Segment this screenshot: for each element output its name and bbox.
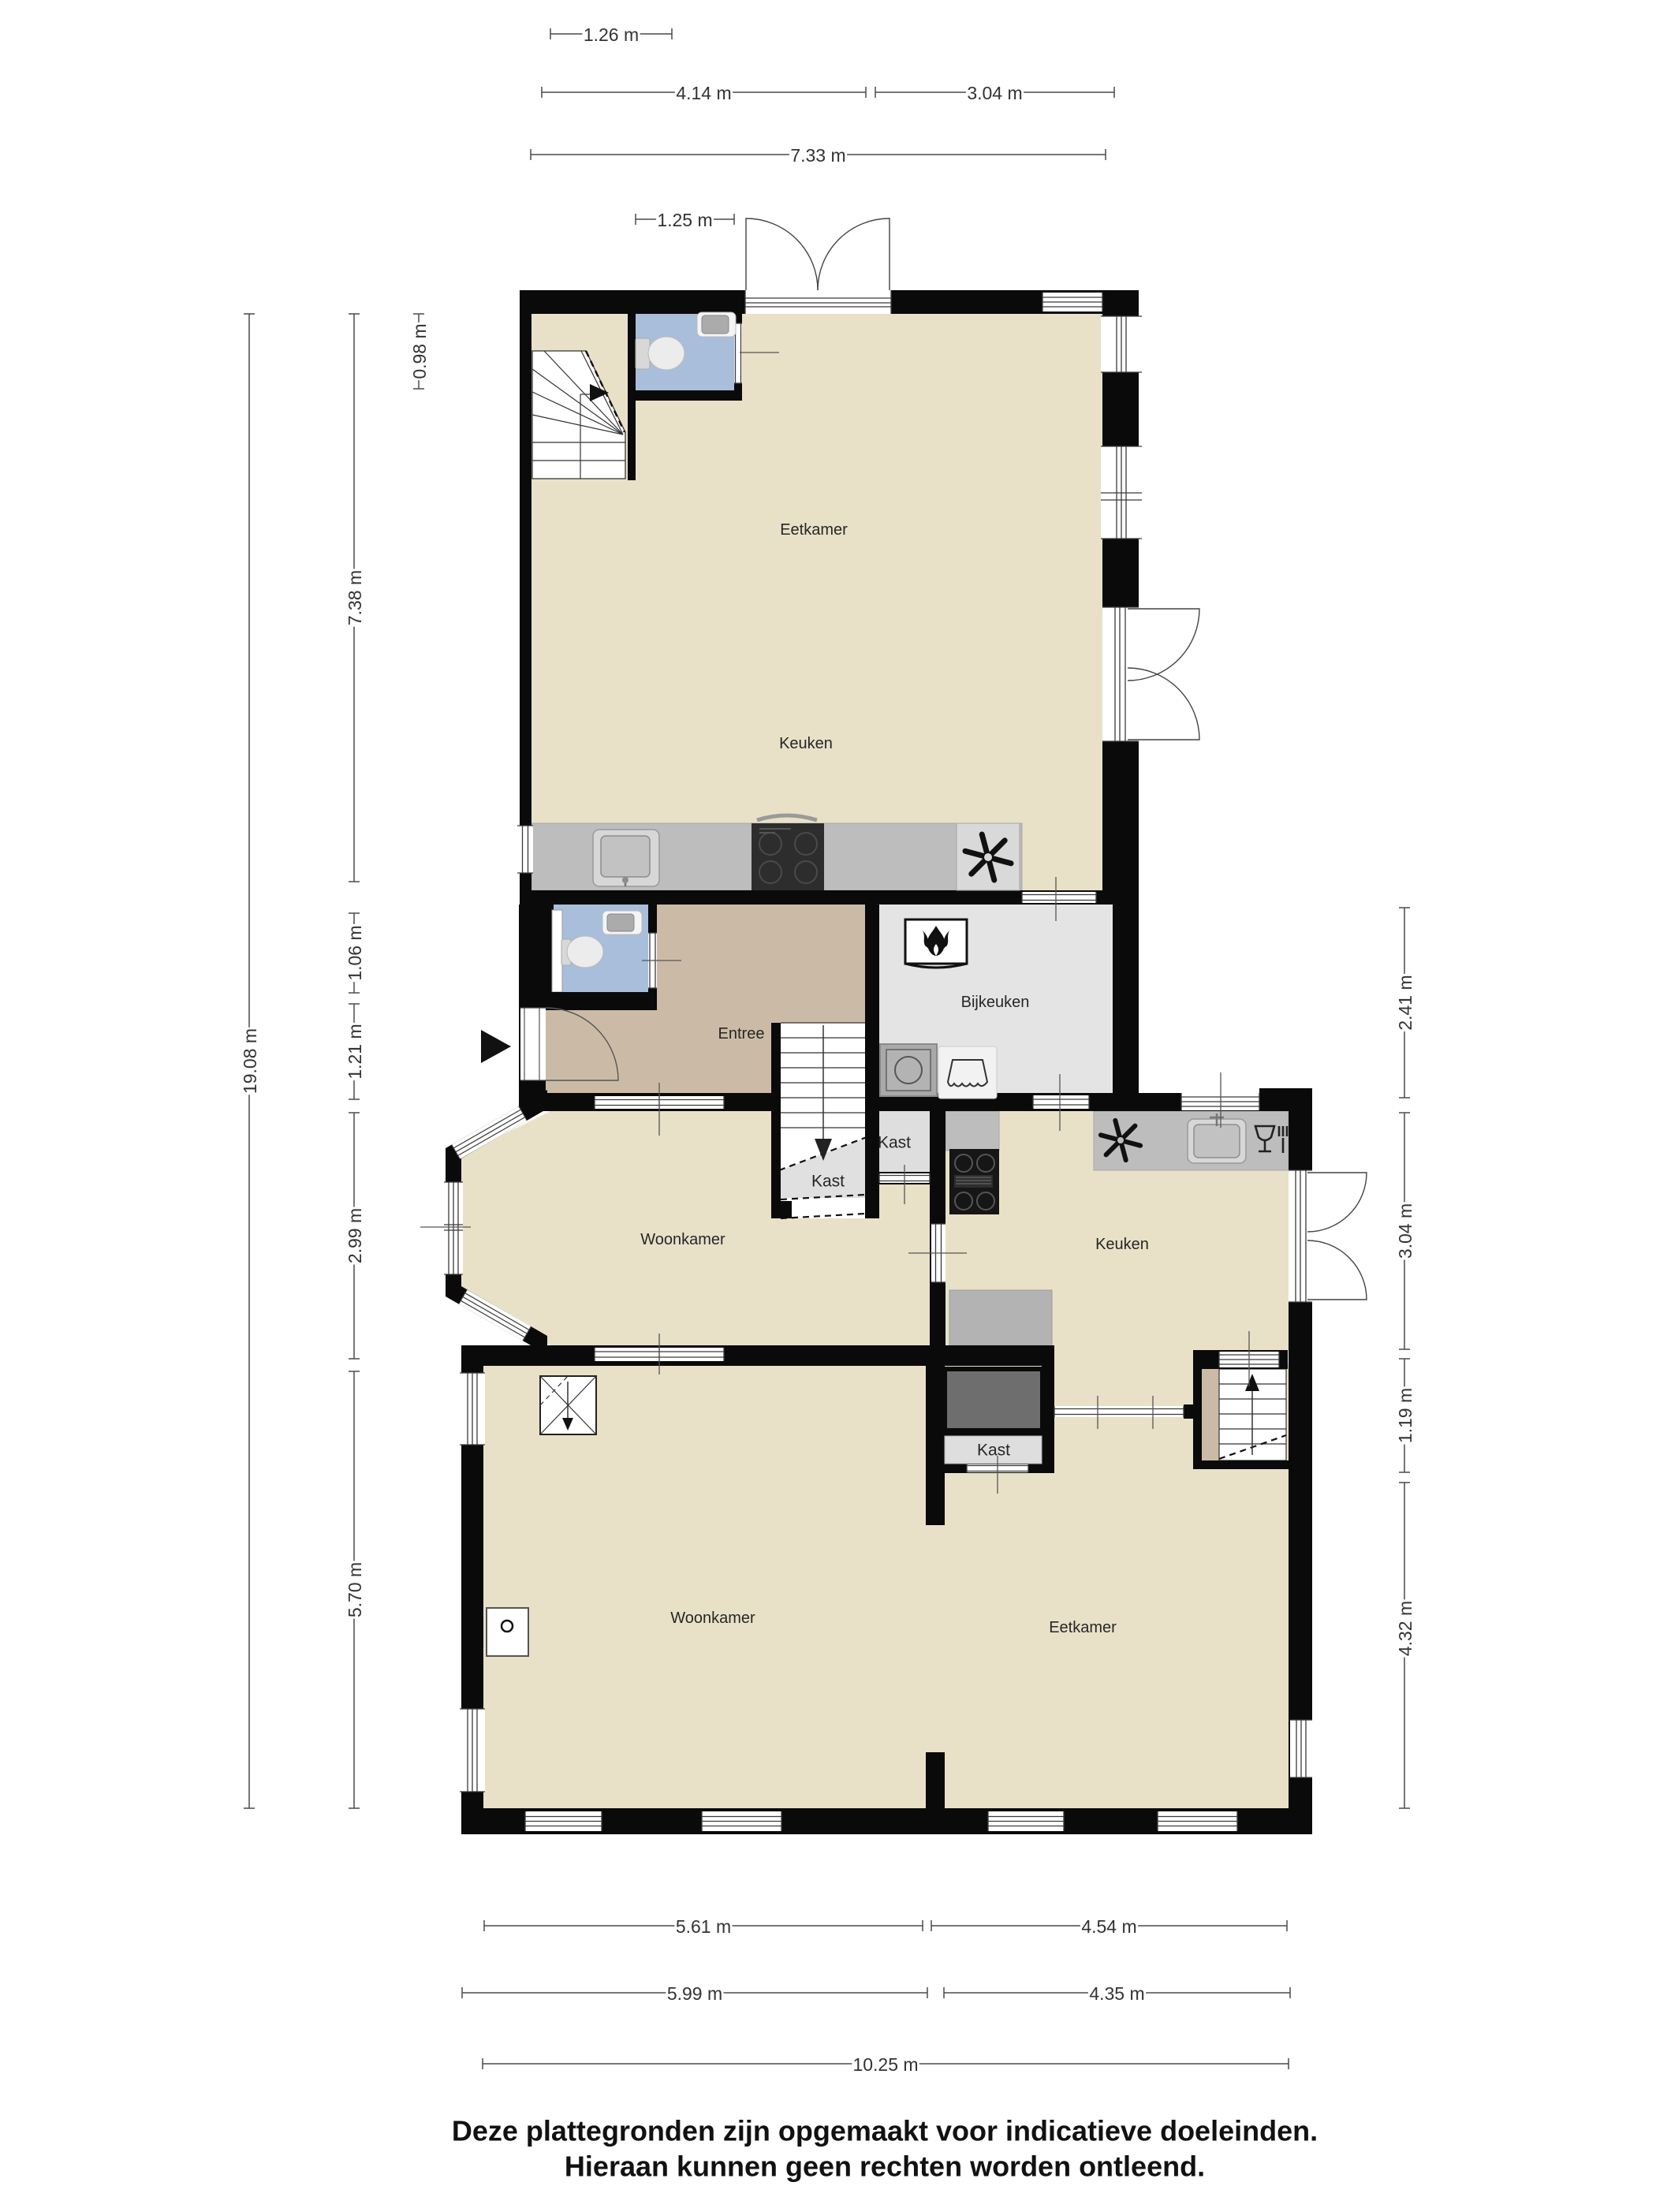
svg-text:4.32 m: 4.32 m xyxy=(1395,1601,1415,1656)
svg-text:1.06 m: 1.06 m xyxy=(345,925,365,980)
svg-text:Entree: Entree xyxy=(718,1025,765,1043)
svg-text:4.14 m: 4.14 m xyxy=(676,83,731,103)
svg-text:1.19 m: 1.19 m xyxy=(1395,1388,1415,1443)
svg-text:4.54 m: 4.54 m xyxy=(1081,1916,1136,1937)
svg-text:7.33 m: 7.33 m xyxy=(790,145,845,166)
svg-text:Eetkamer: Eetkamer xyxy=(1049,1619,1117,1636)
svg-text:19.08 m: 19.08 m xyxy=(240,1028,260,1094)
svg-text:7.38 m: 7.38 m xyxy=(345,570,365,625)
svg-text:5.99 m: 5.99 m xyxy=(667,1983,722,2004)
svg-text:Kast: Kast xyxy=(878,1134,911,1152)
svg-text:Keuken: Keuken xyxy=(779,735,833,752)
svg-text:3.04 m: 3.04 m xyxy=(967,83,1022,103)
svg-text:5.61 m: 5.61 m xyxy=(676,1916,731,1937)
svg-text:2.99 m: 2.99 m xyxy=(345,1208,365,1263)
svg-text:Eetkamer: Eetkamer xyxy=(780,521,848,539)
svg-text:1.25 m: 1.25 m xyxy=(657,210,712,230)
svg-text:Keuken: Keuken xyxy=(1095,1236,1149,1253)
svg-text:Deze plattegronden zijn opgema: Deze plattegronden zijn opgemaakt voor i… xyxy=(452,2115,1318,2147)
svg-text:2.41 m: 2.41 m xyxy=(1395,975,1415,1030)
svg-text:10.25 m: 10.25 m xyxy=(852,2054,918,2075)
svg-text:Kast: Kast xyxy=(811,1173,845,1191)
svg-text:Woonkamer: Woonkamer xyxy=(670,1610,755,1627)
svg-text:1.21 m: 1.21 m xyxy=(345,1024,365,1079)
svg-text:1.26 m: 1.26 m xyxy=(584,24,639,45)
svg-text:Hieraan kunnen geen rechten wo: Hieraan kunnen geen rechten worden ontle… xyxy=(565,2150,1205,2183)
svg-text:0.98 m: 0.98 m xyxy=(409,323,430,379)
svg-text:Woonkamer: Woonkamer xyxy=(640,1231,725,1248)
svg-text:4.35 m: 4.35 m xyxy=(1089,1983,1144,2004)
svg-text:3.04 m: 3.04 m xyxy=(1395,1203,1415,1259)
svg-text:Kast: Kast xyxy=(977,1442,1010,1460)
svg-text:Bijkeuken: Bijkeuken xyxy=(961,994,1030,1011)
svg-text:5.70 m: 5.70 m xyxy=(345,1562,365,1617)
